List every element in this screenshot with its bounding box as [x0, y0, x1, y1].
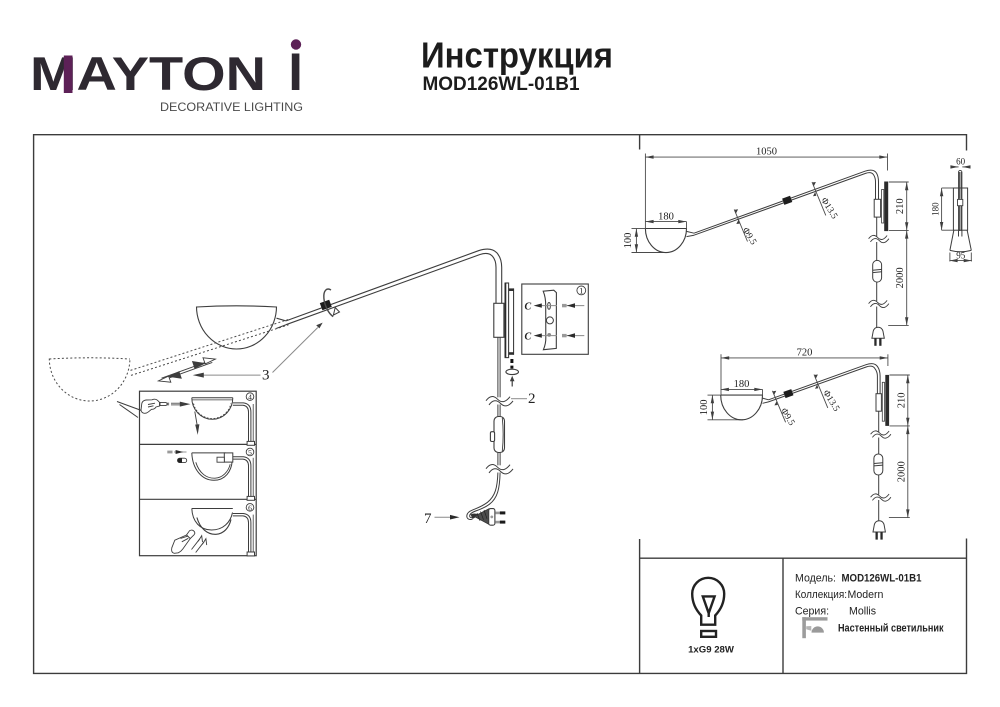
svg-text:1050: 1050	[756, 147, 777, 158]
svg-text:1: 1	[579, 286, 583, 296]
svg-text:2000: 2000	[896, 461, 907, 482]
svg-text:180: 180	[734, 379, 750, 390]
svg-text:Модель:: Модель:	[795, 573, 836, 585]
svg-text:Серия:: Серия:	[795, 606, 829, 618]
svg-text:Коллекция:: Коллекция:	[795, 589, 847, 601]
svg-text:MOD126WL-01B1: MOD126WL-01B1	[842, 573, 922, 585]
svg-text:Φ9.5: Φ9.5	[740, 226, 758, 247]
svg-text:6: 6	[248, 503, 252, 512]
svg-text:1xG9 28W: 1xG9 28W	[688, 645, 735, 656]
svg-text:180: 180	[930, 202, 940, 216]
svg-text:210: 210	[895, 198, 906, 214]
svg-text:C: C	[525, 301, 532, 312]
svg-text:95: 95	[956, 250, 966, 260]
svg-text:60: 60	[956, 156, 966, 166]
svg-text:100: 100	[623, 233, 634, 249]
svg-text:210: 210	[896, 393, 907, 409]
svg-text:Φ13.5: Φ13.5	[818, 196, 839, 221]
svg-text:Настенный светильник: Настенный светильник	[838, 622, 944, 634]
svg-text:C: C	[525, 331, 532, 342]
svg-text:4: 4	[248, 393, 252, 402]
svg-text:Mollis: Mollis	[849, 606, 876, 618]
svg-text:5: 5	[248, 448, 252, 457]
svg-text:DECORATIVE LIGHTING: DECORATIVE LIGHTING	[160, 102, 303, 114]
svg-text:Φ13.5: Φ13.5	[820, 389, 841, 414]
svg-text:720: 720	[797, 348, 813, 359]
svg-text:7: 7	[424, 511, 432, 527]
svg-text:2: 2	[528, 391, 536, 407]
svg-text:MOD126WL-01B1: MOD126WL-01B1	[423, 74, 580, 95]
svg-text:3: 3	[262, 368, 270, 384]
svg-text:2000: 2000	[895, 267, 906, 288]
svg-text:Modern: Modern	[848, 589, 884, 601]
svg-text:Φ9.5: Φ9.5	[778, 407, 796, 428]
svg-text:100: 100	[699, 400, 710, 416]
svg-text:Инструкция: Инструкция	[421, 35, 613, 76]
svg-text:180: 180	[658, 211, 674, 222]
